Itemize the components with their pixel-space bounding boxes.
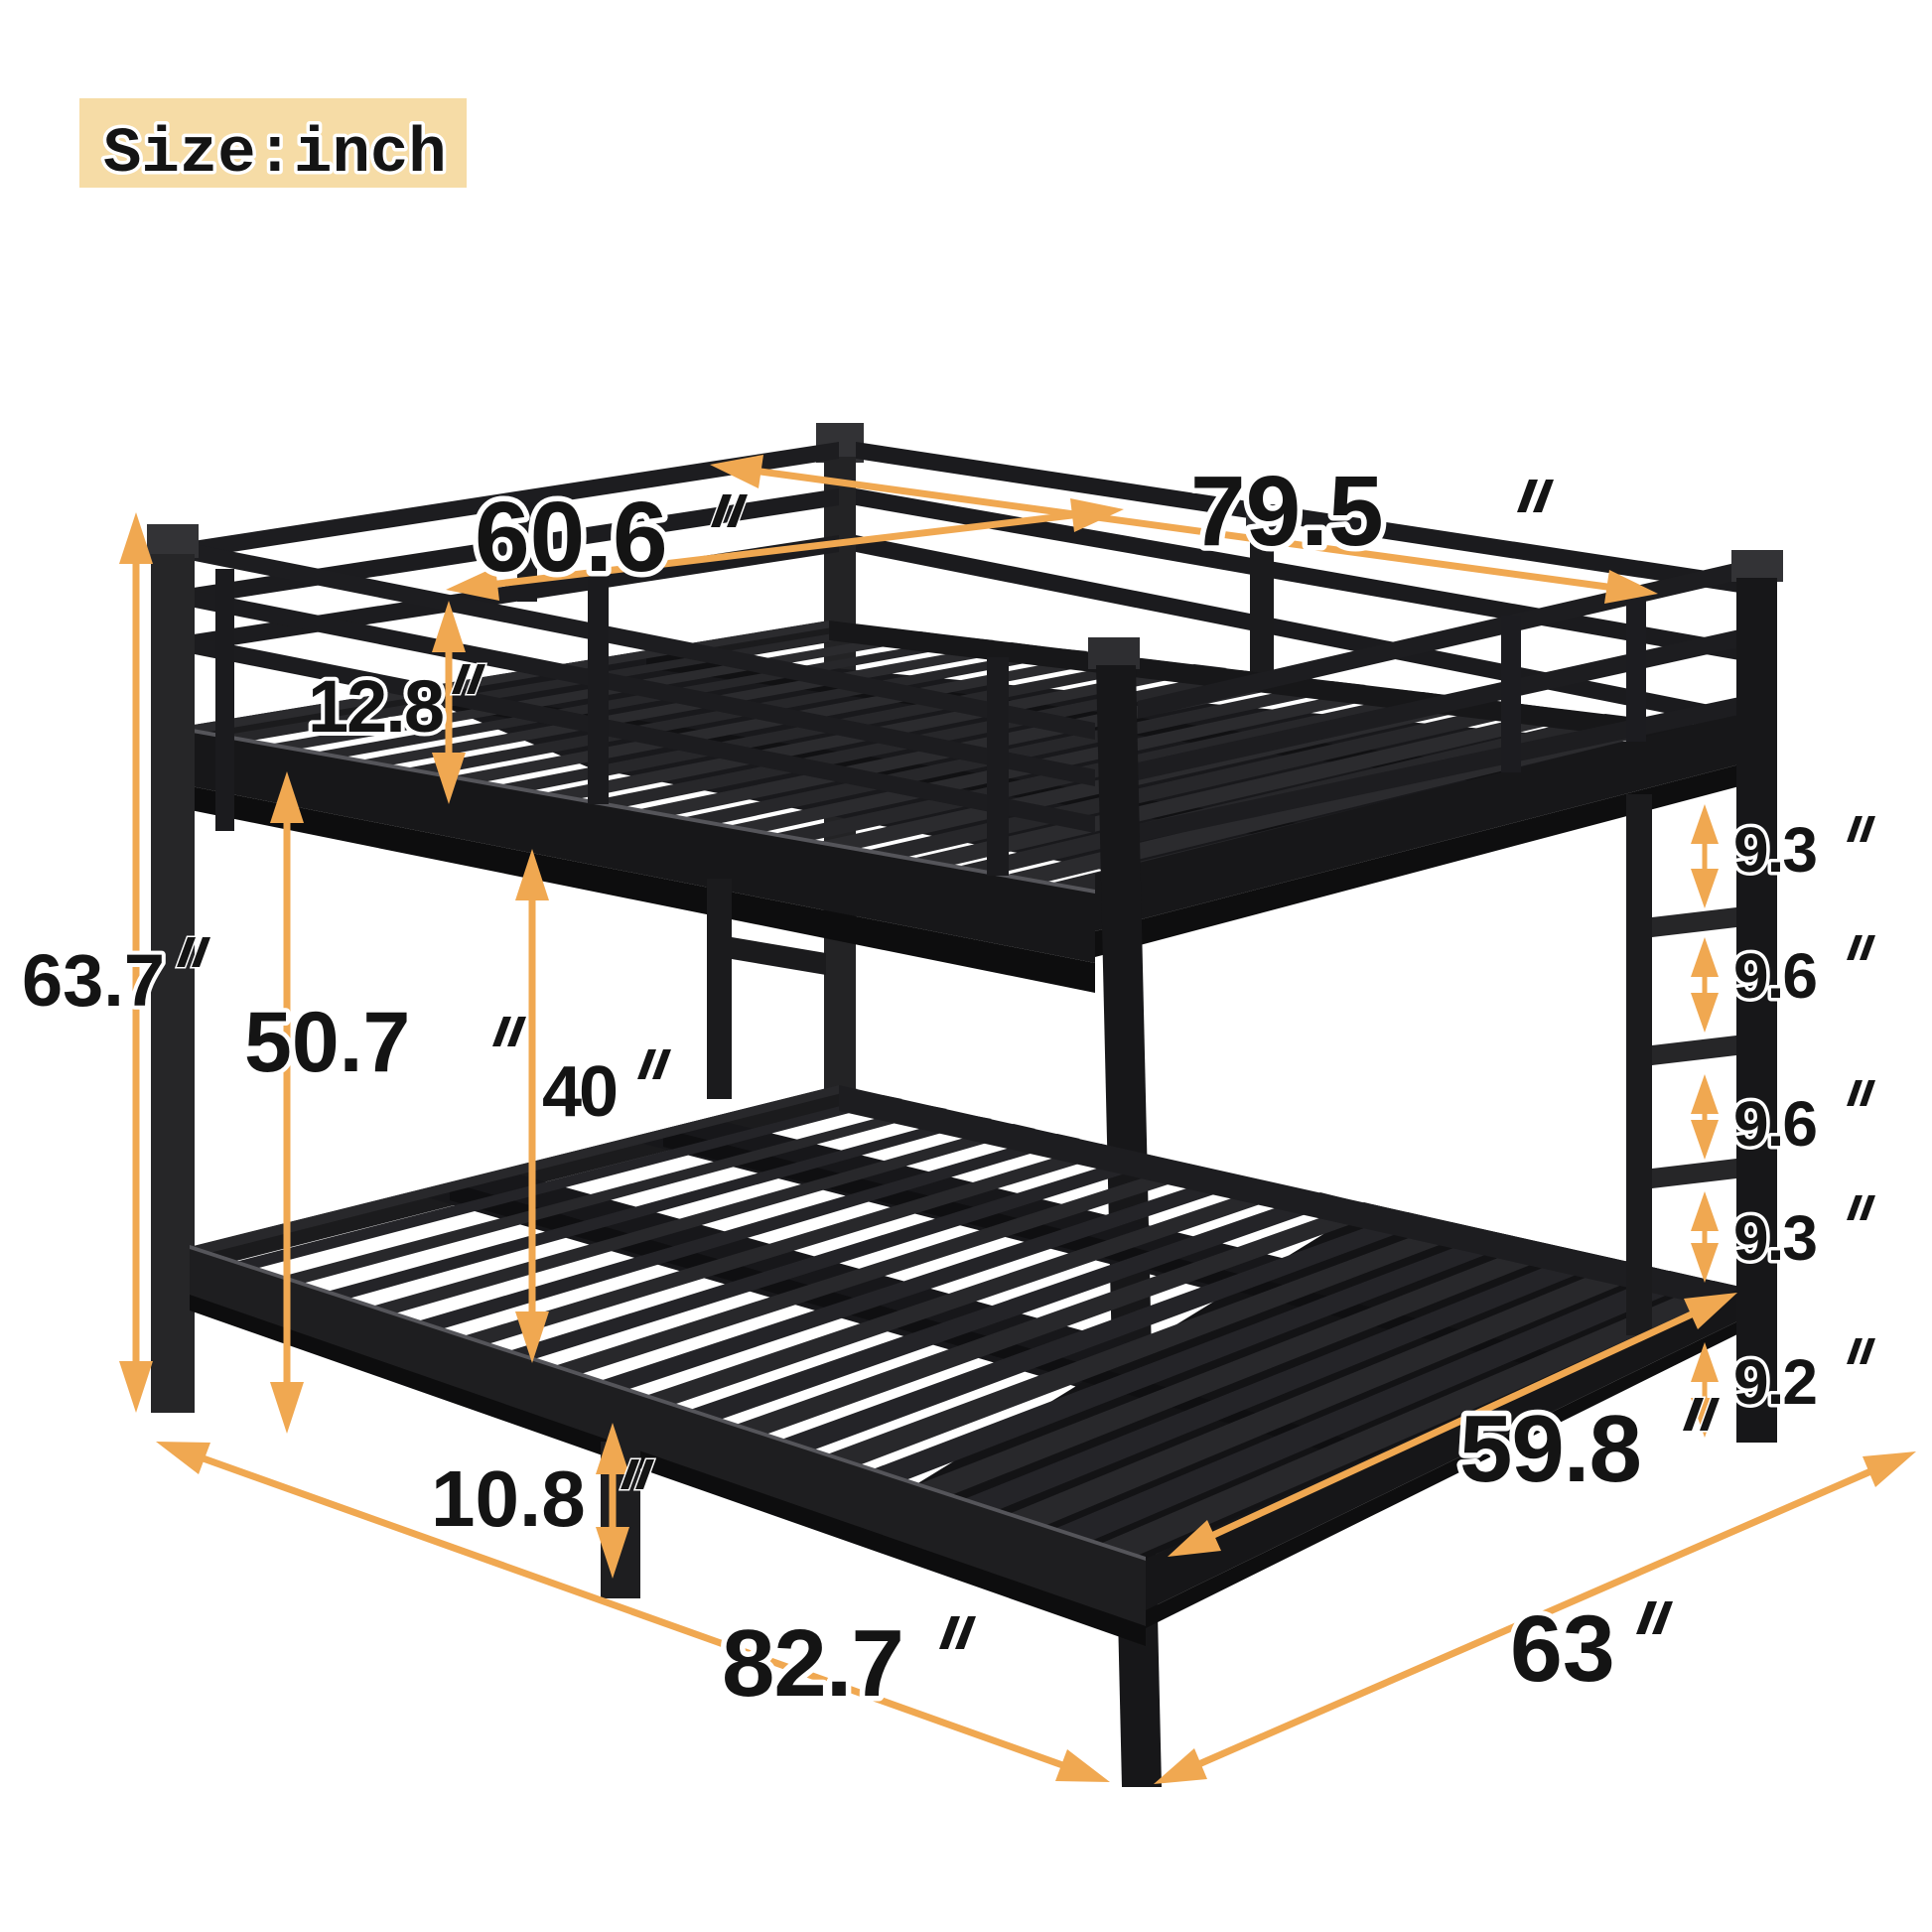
svg-text:60.6: 60.6 [475, 482, 668, 593]
svg-text:63: 63 [1510, 1596, 1615, 1702]
svg-text:12.8: 12.8 [308, 665, 443, 748]
svg-text:59.8: 59.8 [1459, 1396, 1641, 1502]
svg-text:82.7: 82.7 [722, 1610, 903, 1717]
svg-text:9.3: 9.3 [1733, 814, 1816, 886]
svg-text:63.7: 63.7 [22, 939, 165, 1022]
svg-text:50.7: 50.7 [244, 995, 410, 1090]
svg-text:9.2: 9.2 [1733, 1346, 1816, 1418]
svg-text:Size:inch: Size:inch [103, 119, 447, 191]
svg-text:10.8: 10.8 [431, 1454, 586, 1543]
svg-text:79.5: 79.5 [1190, 456, 1384, 567]
svg-text:9.6: 9.6 [1733, 940, 1816, 1012]
svg-text:40: 40 [542, 1052, 617, 1132]
svg-text:9.6: 9.6 [1733, 1088, 1816, 1160]
svg-text:9.3: 9.3 [1733, 1202, 1816, 1274]
